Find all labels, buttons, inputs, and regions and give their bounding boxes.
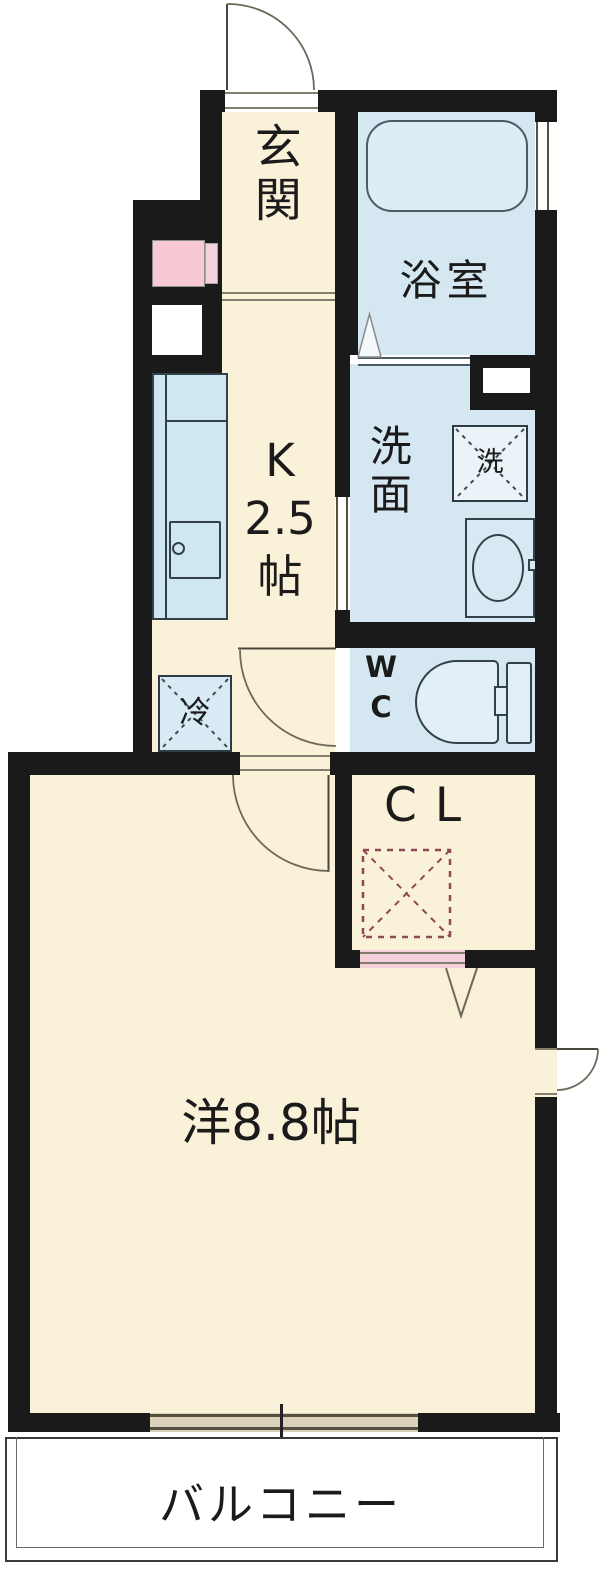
wall-closet-bottom-left <box>335 950 360 968</box>
pipe-space-white-box <box>152 305 202 355</box>
wall-niche-white-box <box>483 368 530 393</box>
kitchen-label-line1: K <box>230 436 330 486</box>
wall-bottom-right-seg <box>418 1413 560 1432</box>
partition-bath-washroom-line2 <box>358 364 470 366</box>
partition-bath-washroom-line1 <box>358 357 470 359</box>
kitchen-label-line2: 2.5 <box>230 494 330 544</box>
kitchen-room-door-line2 <box>240 769 330 771</box>
kitchen-counter-icon <box>152 373 228 620</box>
entrance-threshold-line1 <box>225 92 318 94</box>
closet-door-line2 <box>360 962 465 964</box>
wall-closet-top <box>358 752 535 775</box>
wall-right-seg-c <box>535 1097 557 1432</box>
wall-washroom-left-upper <box>335 355 350 497</box>
wc-label-line1: W <box>360 652 402 684</box>
vanity-basin-icon <box>472 534 524 602</box>
kitchen-counter-divider-line <box>166 420 228 422</box>
bathtub-icon <box>366 120 528 212</box>
wall-main-left <box>8 752 30 1432</box>
sliding-window-center-tick <box>280 1404 283 1441</box>
wall-kitchen-room-left <box>8 752 240 775</box>
entrance-threshold-line2 <box>225 107 318 109</box>
washroom-label: 洗面 <box>364 424 410 520</box>
kitchen-room-door-line1 <box>240 755 330 757</box>
side-door-arc <box>557 1049 598 1090</box>
balcony-label: バルコニー <box>56 1480 506 1530</box>
bathroom-window-line2 <box>547 122 549 210</box>
wall-washroom-wc-divider <box>350 622 537 648</box>
closet-door-line1 <box>360 952 465 954</box>
wall-kitchen-room-right-chunk <box>330 752 358 775</box>
washroom-door-line2 <box>346 497 348 610</box>
genkan-label: 玄関 <box>247 122 299 228</box>
wall-right-seg-b <box>535 210 557 1048</box>
wall-left-mid <box>133 373 152 755</box>
bathroom-window-line1 <box>536 122 538 210</box>
toilet-tank-icon <box>506 662 532 744</box>
sliding-window-line1 <box>150 1414 418 1417</box>
western-room-label: 洋8.8帖 <box>71 1096 471 1151</box>
kitchen-counter-edge-line <box>165 373 167 620</box>
refrigerator-label: 冷 <box>158 696 232 730</box>
bathroom-label: 浴室 <box>358 258 535 304</box>
wall-closet-bottom-right <box>465 950 557 968</box>
side-door-line2 <box>535 1093 557 1095</box>
side-door-line1 <box>535 1048 557 1050</box>
kitchen-label-line3: 帖 <box>230 552 330 602</box>
wall-right-seg-a <box>535 90 557 122</box>
wall-washroom-left-lower <box>335 610 350 648</box>
wall-bottom-left-seg <box>8 1413 150 1432</box>
kitchen-faucet-icon <box>172 542 185 555</box>
meter-box-pink <box>152 240 205 287</box>
washroom-door-line1 <box>336 497 338 610</box>
toilet-bowl-icon <box>415 660 499 744</box>
wall-top-right-seg <box>318 90 557 112</box>
wall-genkan-bath-divider <box>335 112 358 355</box>
sliding-window-line2 <box>150 1427 418 1430</box>
meter-box-door-strip <box>205 243 218 284</box>
wc-label-line2: C <box>360 692 402 724</box>
washing-machine-label: 洗 <box>452 448 528 478</box>
genkan-step-line2 <box>222 299 335 301</box>
bathroom-window <box>535 122 557 210</box>
entrance-door-arc <box>227 4 314 90</box>
floorplan: 玄関 浴室 K 2.5 帖 洗面 洗 W C 冷 CL 洋8.8帖 バルコニー <box>0 0 600 1570</box>
closet-label: CL <box>384 780 479 832</box>
wall-closet-left <box>335 775 352 968</box>
genkan-step-line1 <box>222 292 335 294</box>
side-door-opening <box>535 1048 557 1097</box>
